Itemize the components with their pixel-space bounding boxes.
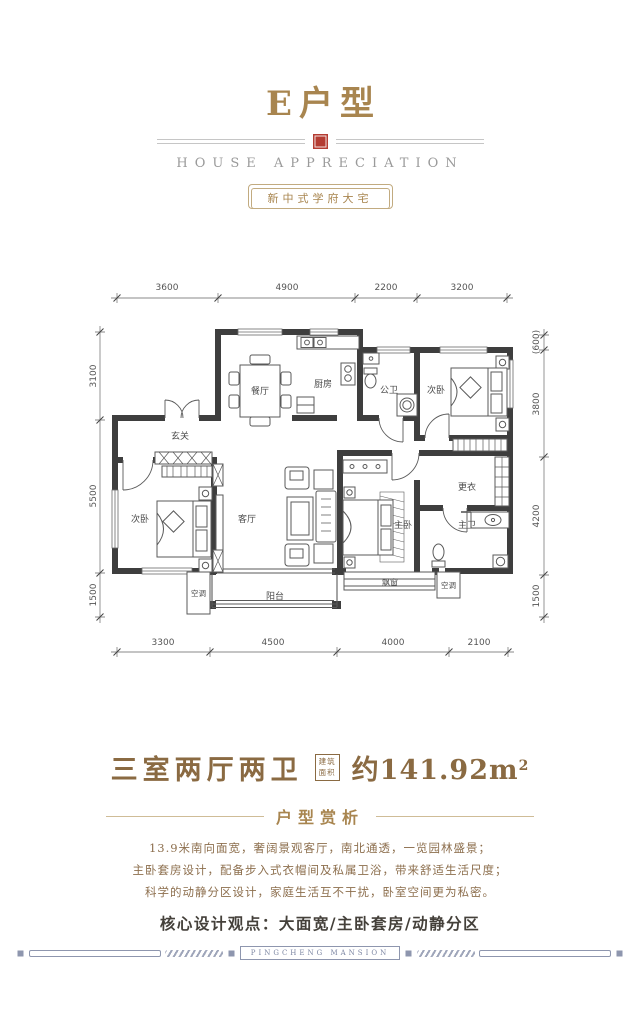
title-divider — [0, 134, 640, 149]
dim-right-2: 3800 — [532, 392, 542, 415]
dim-bottom-1: 3300 — [152, 638, 175, 648]
dim-top-2: 4900 — [276, 283, 299, 293]
area-superscript: 2 — [519, 758, 530, 774]
window-bottom-left — [142, 568, 192, 574]
room-label-master: 主卧 — [394, 519, 412, 531]
footer-bar-right — [479, 950, 611, 957]
summary-row: 三室两厅两卫 建筑 面积 约141.92m2 — [0, 748, 640, 787]
analysis-text-line: 主卧套房设计，配备步入式衣帽间及私属卫浴，带来舒适生活尺度； — [0, 859, 640, 881]
room-label-ac-left: 空调 — [191, 588, 206, 598]
room-label-bedroom-right: 次卧 — [427, 384, 445, 396]
area-badge-line2: 面积 — [319, 768, 336, 778]
dim-right-1: (600) — [532, 330, 542, 354]
dim-right-3: 4200 — [532, 504, 542, 527]
area-badge: 建筑 面积 — [315, 754, 340, 780]
badge-wrap: 新中式学府大宅 — [0, 184, 640, 209]
footer-braid-right — [417, 950, 475, 957]
analysis-title: 户型赏析 — [276, 804, 364, 828]
area-value: 约141.92m2 — [352, 748, 530, 787]
door-guest-bath — [379, 418, 403, 442]
analysis-text-line: 13.9米南向面宽，奢阔景观客厅，南北通透，一览园林盛景； — [0, 837, 640, 859]
dim-left-2: 5500 — [89, 484, 99, 507]
dressing-room-furniture — [495, 457, 509, 506]
area-number: 约141.92m — [352, 755, 519, 786]
living-room-furniture — [216, 467, 336, 566]
room-label-bedroom-left: 次卧 — [131, 513, 149, 525]
analysis-section: 户型赏析 13.9米南向面宽，奢阔景观客厅，南北通透，一览园林盛景； 主卧套房设… — [0, 804, 640, 934]
window-guest-bath — [377, 347, 410, 353]
tagline-badge: 新中式学府大宅 — [248, 184, 393, 209]
area-badge-line1: 建筑 — [319, 757, 336, 767]
dim-top-3: 2200 — [375, 283, 398, 293]
door-bedroom-left — [123, 460, 153, 490]
layout-name: 三室两厅两卫 — [111, 748, 303, 787]
room-label-foyer: 玄关 — [171, 430, 189, 442]
dim-bottom-4: 2100 — [468, 638, 491, 648]
analysis-header: 户型赏析 — [0, 804, 640, 828]
window-kitchen — [310, 329, 338, 335]
page-subtitle: HOUSE APPRECIATION — [0, 156, 640, 171]
divider-line-left — [157, 139, 305, 144]
door-master — [392, 453, 419, 480]
header: E户型 HOUSE APPRECIATION 新中式学府大宅 — [0, 76, 640, 209]
knot-icon — [404, 949, 413, 958]
analysis-core-points: 核心设计观点：大面宽/主卧套房/动静分区 — [0, 912, 640, 934]
floorplan-svg: 3600 4900 2200 3200 3300 4500 4000 2100 … — [47, 268, 592, 668]
door-bedroom-right — [425, 414, 449, 438]
window-bedroom-right-top — [440, 347, 487, 353]
footer-brand: PINGCHENG MANSION — [240, 946, 400, 960]
dim-right-4: 1500 — [532, 584, 542, 607]
tagline-badge-label: 新中式学府大宅 — [251, 188, 390, 209]
room-label-dining: 餐厅 — [251, 385, 269, 397]
footer-bar-left — [29, 950, 161, 957]
page-title: E户型 — [7, 76, 640, 125]
room-label-ac-right: 空调 — [441, 580, 456, 590]
room-label-dressing: 更衣 — [458, 481, 476, 493]
room-label-master-bath: 主卫 — [458, 519, 476, 531]
room-label-balcony: 阳台 — [266, 590, 284, 602]
knot-icon — [615, 949, 624, 958]
room-label-living: 客厅 — [238, 513, 256, 525]
dim-bottom-3: 4000 — [382, 638, 405, 648]
window-bedroom-left-side — [112, 490, 118, 548]
corridor-closet — [453, 439, 507, 451]
dim-bottom-2: 4500 — [262, 638, 285, 648]
master-bedroom-furniture — [343, 460, 404, 568]
bedroom-left-furniture — [155, 452, 212, 572]
footer-ornament: PINGCHENG MANSION — [0, 946, 640, 960]
analysis-body: 13.9米南向面宽，奢阔景观客厅，南北通透，一览园林盛景； 主卧套房设计，配备步… — [0, 837, 640, 903]
dim-top-1: 3600 — [156, 283, 179, 293]
dim-left-3: 1500 — [89, 583, 99, 606]
room-label-kitchen: 厨房 — [314, 378, 332, 390]
divider-line-right — [336, 139, 484, 144]
knot-icon — [227, 949, 236, 958]
footer-braid-left — [165, 950, 223, 957]
analysis-line-left — [106, 816, 264, 817]
dim-top-4: 3200 — [451, 283, 474, 293]
analysis-line-right — [376, 816, 534, 817]
dim-left-1: 3100 — [89, 364, 99, 387]
bedroom-right-furniture — [451, 356, 509, 431]
entry-door — [165, 400, 199, 418]
page: E户型 HOUSE APPRECIATION 新中式学府大宅 — [0, 0, 640, 1018]
seal-icon — [313, 134, 328, 149]
room-label-bay-window: 飘窗 — [382, 577, 398, 587]
analysis-text-line: 科学的动静分区设计，家庭生活互不干扰，卧室空间更为私密。 — [0, 881, 640, 903]
guest-bath-fixtures — [363, 353, 417, 416]
window-dining — [238, 329, 282, 335]
knot-icon — [16, 949, 25, 958]
room-label-guest-bath: 公卫 — [380, 385, 398, 396]
kitchen-counter — [297, 336, 359, 413]
